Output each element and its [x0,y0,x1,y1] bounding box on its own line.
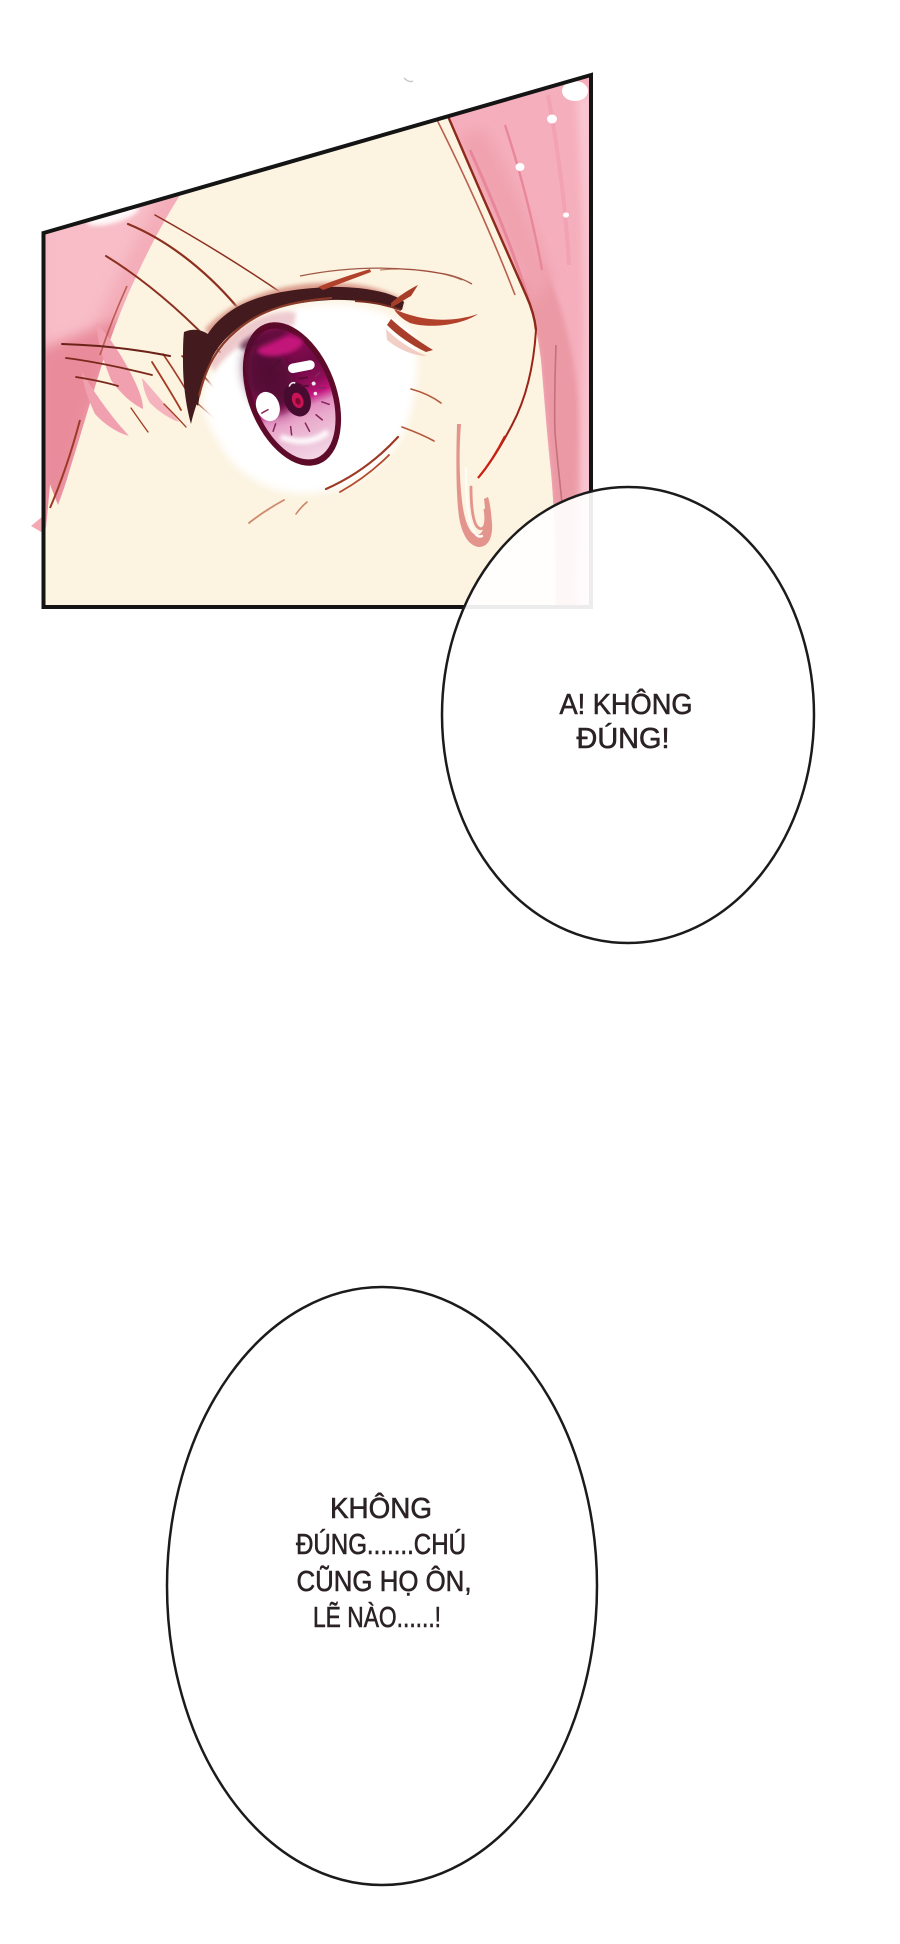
svg-text:ĐÚNG!: ĐÚNG! [577,722,670,755]
svg-text:CŨNG HỌ ÔN,: CŨNG HỌ ÔN, [297,1564,472,1598]
svg-text:KHÔNG: KHÔNG [330,1491,432,1525]
svg-text:LẼ NÀO......!: LẼ NÀO......! [313,1600,441,1634]
svg-text:ĐÚNG.......CHÚ: ĐÚNG.......CHÚ [296,1528,466,1561]
svg-text:A! KHÔNG: A! KHÔNG [560,687,693,721]
